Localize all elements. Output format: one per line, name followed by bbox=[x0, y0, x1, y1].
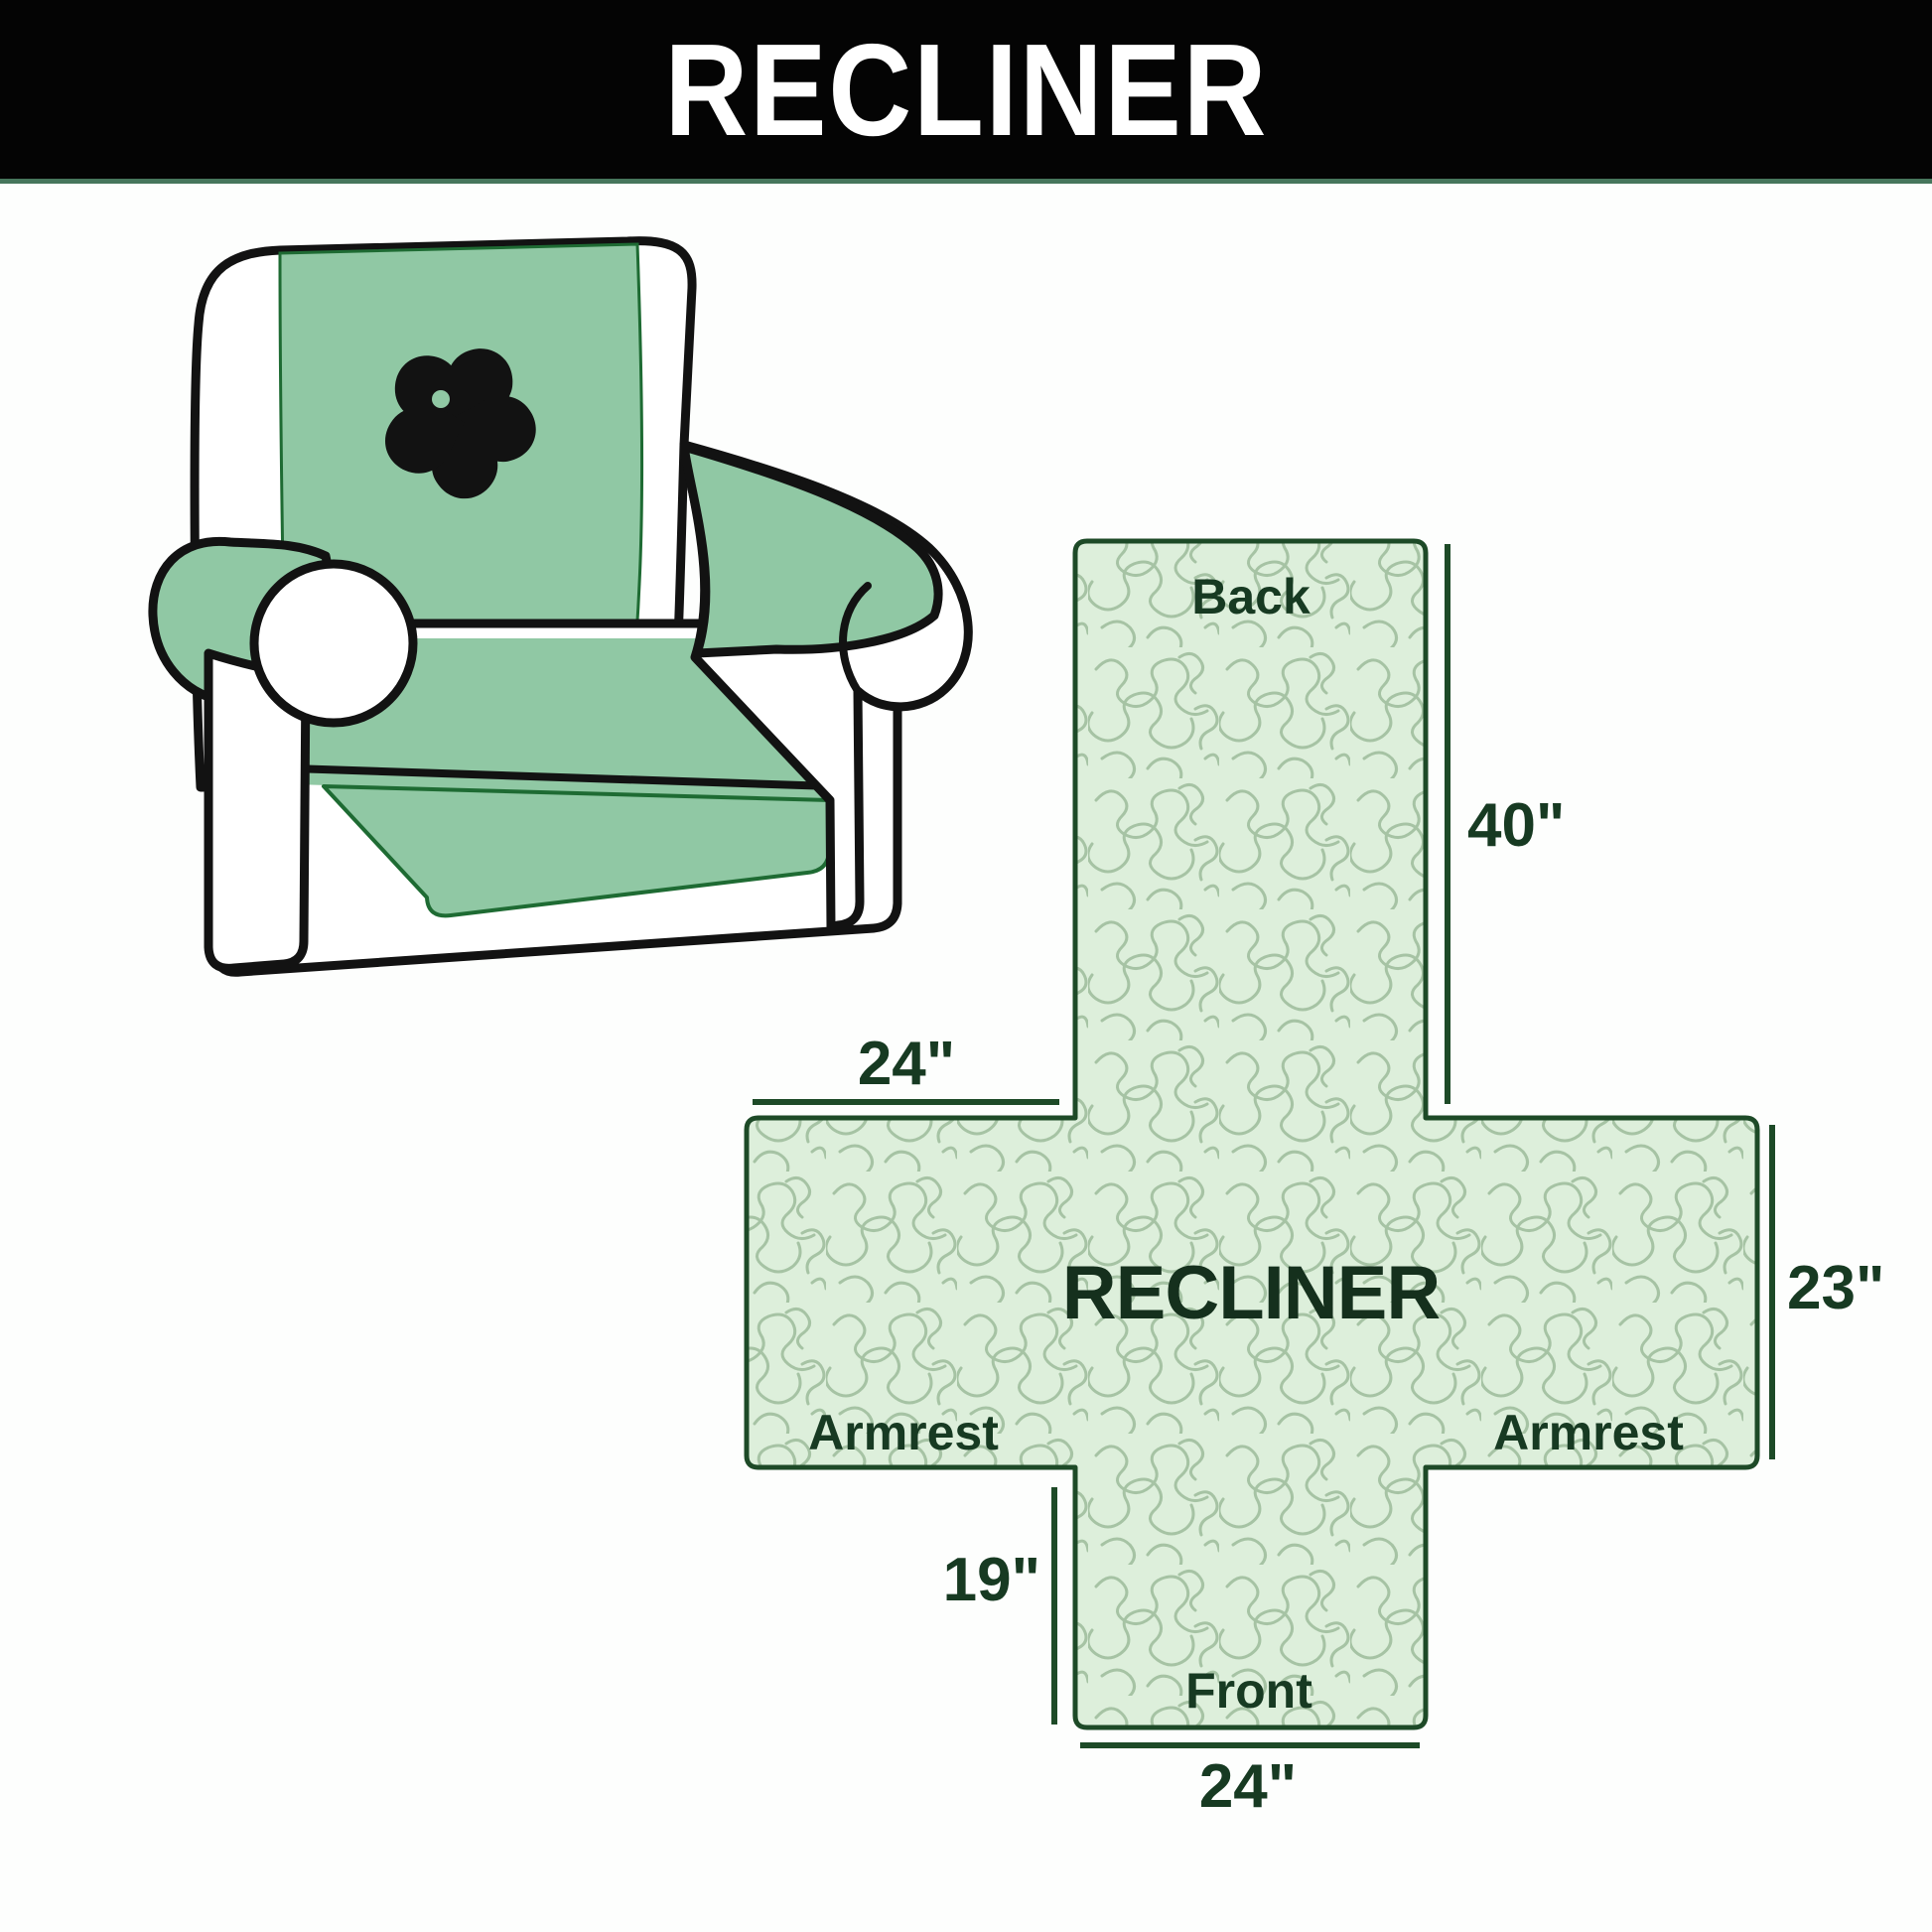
measurement-front-width: 24" bbox=[1199, 1752, 1297, 1821]
banner: RECLINER bbox=[0, 0, 1932, 184]
measurement-armrest-top-width: 24" bbox=[858, 1030, 955, 1098]
section-label-armrest-right: Armrest bbox=[1493, 1405, 1684, 1460]
page: RECLINER bbox=[0, 0, 1932, 1932]
section-label-armrest-left: Armrest bbox=[808, 1405, 999, 1460]
cover-pattern-diagram: Back Armrest Armrest Front RECLINER 40" … bbox=[695, 516, 1932, 1906]
section-label-back: Back bbox=[1191, 569, 1311, 624]
measurement-armrest-side-height: 23" bbox=[1787, 1254, 1884, 1322]
measurement-back-height: 40" bbox=[1467, 791, 1565, 860]
banner-title: RECLINER bbox=[664, 15, 1268, 165]
left-arm-roll bbox=[254, 564, 413, 723]
diagram-center-label: RECLINER bbox=[1062, 1251, 1441, 1335]
section-label-front: Front bbox=[1185, 1663, 1312, 1719]
measurement-front-flap-height: 19" bbox=[943, 1546, 1040, 1614]
cover-pattern-shape bbox=[747, 541, 1757, 1727]
